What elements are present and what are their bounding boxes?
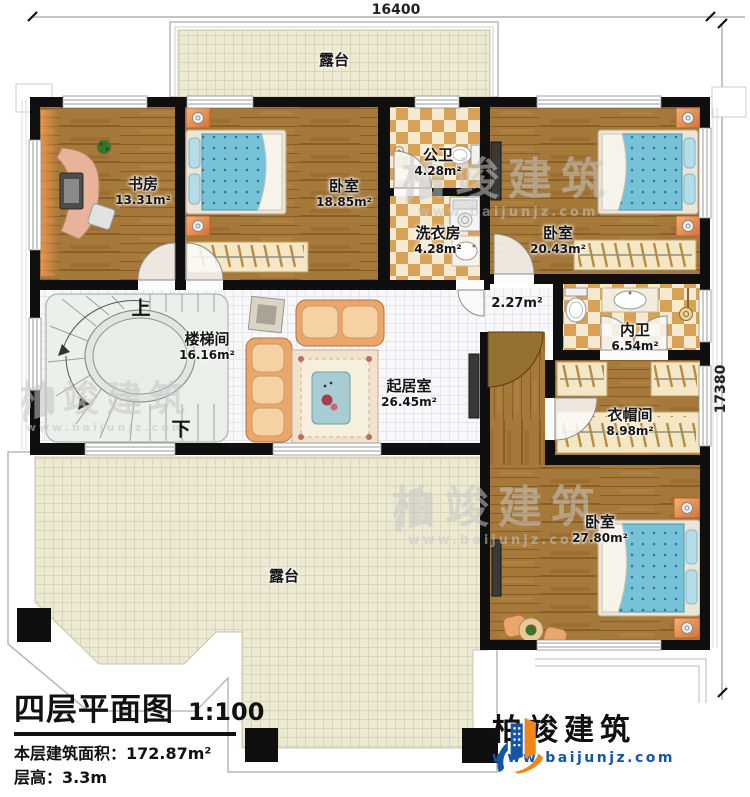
side-table-icon (248, 296, 284, 332)
dimension-top: 16400 (372, 2, 421, 18)
wardrobe-icon (574, 240, 696, 270)
room-area: 26.45m² (381, 395, 437, 409)
room-label-study: 书房 13.31m² (115, 175, 171, 207)
floor-plan-page: 16400 17380 柏竣建筑 www.baijunjz.com 柏竣建筑 w… (0, 0, 750, 797)
room-label-cloakroom: 衣帽间 8.98m² (606, 406, 653, 438)
room-area: 4.28m² (414, 164, 461, 178)
room-name: 内卫 (611, 321, 658, 339)
room-name: 楼梯间 (179, 330, 235, 348)
room-name: 衣帽间 (606, 406, 653, 424)
room-label-terrace-bottom: 露台 (269, 567, 299, 585)
room-label-terrace-top: 露台 (319, 51, 349, 69)
room-label-stairwell: 楼梯间 16.16m² (179, 330, 235, 362)
tv-icon (492, 540, 501, 596)
stairs-down-label: 下 (171, 415, 190, 442)
room-area: 16.16m² (179, 348, 235, 362)
window (187, 96, 253, 108)
bed-icon (598, 130, 698, 214)
room-area: 13.31m² (115, 193, 171, 207)
room-label-laundry: 洗衣房 4.28m² (414, 224, 461, 256)
window (415, 96, 459, 108)
room-label-ensuite: 内卫 6.54m² (611, 321, 658, 353)
window (273, 443, 381, 455)
room-name: 卧室 (316, 177, 372, 195)
room-name: 公卫 (414, 146, 461, 164)
room-label-hallway: 2.27m² (491, 296, 542, 312)
window (699, 128, 711, 218)
room-name: 书房 (115, 175, 171, 193)
room-name: 洗衣房 (414, 224, 461, 242)
tv-icon (491, 142, 501, 200)
window (85, 443, 175, 455)
plan-title: 四层平面图 (14, 684, 174, 729)
plant-table-icon (519, 618, 543, 642)
window (537, 640, 661, 650)
plan-scale: 1:100 (188, 698, 264, 726)
room-label-public-bath: 公卫 4.28m² (414, 146, 461, 178)
window (699, 366, 711, 446)
room-area: 4.28m² (414, 242, 461, 256)
room-area: 20.43m² (530, 242, 586, 256)
bed-icon (186, 130, 286, 214)
sink-icon (602, 288, 658, 312)
room-label-bedroom2: 卧室 20.43m² (530, 224, 586, 256)
room-name: 卧室 (572, 513, 628, 531)
coffee-table-icon (312, 372, 350, 424)
room-area: 27.80m² (572, 531, 628, 545)
floor-area-text: 本层建筑面积：172.87m² (14, 742, 264, 766)
room-area: 6.54m² (611, 339, 658, 353)
window (29, 140, 41, 250)
title-block: 四层平面图 1:100 本层建筑面积：172.87m² 层高：3.3m (14, 684, 264, 790)
window (699, 290, 711, 342)
floor-plan-canvas (0, 0, 750, 797)
title-underline (14, 732, 236, 736)
stairs-up-label: 上 (131, 294, 150, 321)
window (537, 96, 661, 108)
company-logo-icon (492, 714, 546, 774)
company-logo: 柏竣建筑 www.baijunjz.com (492, 714, 675, 766)
room-label-living: 起居室 26.45m² (381, 377, 437, 409)
sunlight-glow (41, 110, 59, 276)
room-name: 卧室 (530, 224, 586, 242)
room-label-bedroom1: 卧室 18.85m² (316, 177, 372, 209)
window (29, 318, 41, 390)
floor-height-text: 层高：3.3m (14, 766, 264, 790)
toilet-icon (565, 288, 587, 322)
window (63, 96, 147, 108)
room-area: 8.98m² (606, 424, 653, 438)
room-label-bedroom3: 卧室 27.80m² (572, 513, 628, 545)
room-area: 18.85m² (316, 195, 372, 209)
dimension-right: 17380 (713, 365, 729, 414)
tv-icon (469, 354, 479, 418)
room-name: 起居室 (381, 377, 437, 395)
